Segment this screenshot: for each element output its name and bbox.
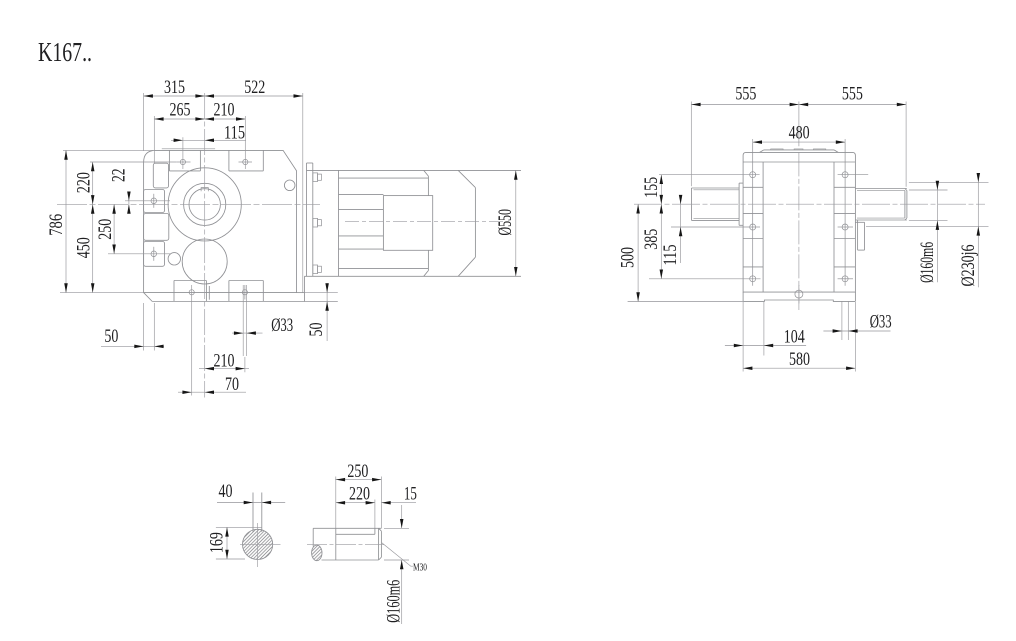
svg-text:15: 15 [404,485,417,505]
svg-text:210: 210 [214,100,235,120]
svg-text:210: 210 [214,352,235,372]
svg-text:Ø550: Ø550 [496,209,516,236]
svg-text:70: 70 [225,375,239,395]
svg-text:Ø160m6: Ø160m6 [385,580,405,623]
svg-text:155: 155 [642,177,662,198]
svg-text:450: 450 [74,237,94,258]
svg-text:Ø33: Ø33 [271,316,293,336]
svg-text:315: 315 [164,78,185,98]
svg-text:Ø160m6: Ø160m6 [918,242,938,283]
svg-text:265: 265 [170,100,191,120]
svg-text:K167..: K167.. [38,37,92,67]
svg-text:500: 500 [619,247,639,268]
svg-text:522: 522 [244,78,265,98]
svg-text:104: 104 [784,328,805,348]
svg-text:M30: M30 [413,562,427,573]
svg-text:580: 580 [789,350,810,370]
svg-text:480: 480 [789,124,810,144]
svg-text:Ø230j6: Ø230j6 [959,245,979,287]
svg-text:555: 555 [842,85,863,105]
svg-text:169: 169 [207,532,227,553]
svg-text:22: 22 [109,168,129,182]
svg-text:555: 555 [735,85,756,105]
svg-text:Ø33: Ø33 [870,313,892,333]
svg-text:50: 50 [104,327,118,347]
svg-text:220: 220 [349,484,370,504]
svg-text:250: 250 [347,462,368,482]
svg-text:40: 40 [219,482,233,502]
svg-text:786: 786 [47,214,67,236]
svg-text:115: 115 [661,245,681,266]
svg-text:385: 385 [642,229,662,250]
svg-text:220: 220 [74,172,94,193]
svg-text:50: 50 [307,323,327,337]
svg-text:250: 250 [96,219,116,240]
svg-text:115: 115 [224,123,245,143]
